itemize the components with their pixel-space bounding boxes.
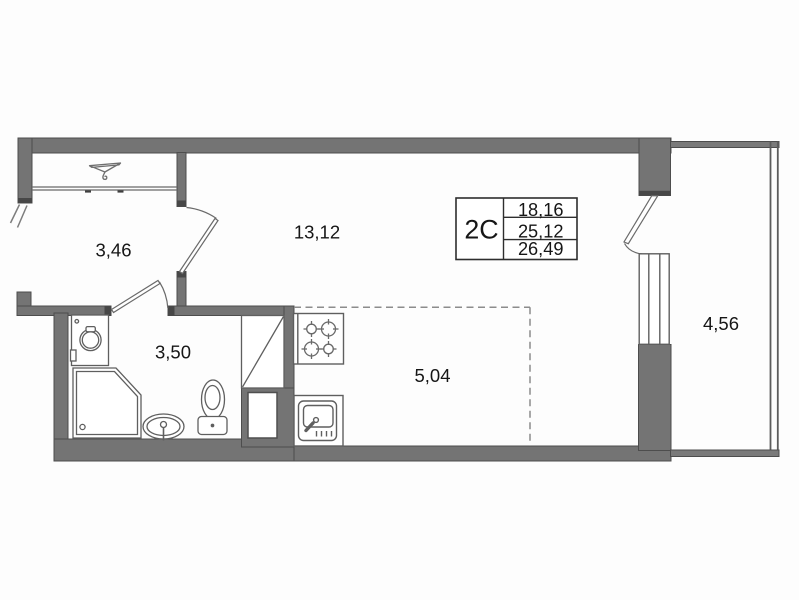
svg-text:2C: 2C: [464, 214, 498, 244]
svg-text:4,56: 4,56: [703, 313, 739, 334]
svg-text:13,12: 13,12: [294, 222, 340, 243]
svg-text:3,50: 3,50: [155, 342, 191, 363]
svg-text:26,49: 26,49: [518, 239, 564, 259]
svg-text:18,16: 18,16: [518, 200, 564, 220]
svg-text:3,46: 3,46: [95, 239, 131, 260]
svg-text:5,04: 5,04: [414, 365, 450, 386]
